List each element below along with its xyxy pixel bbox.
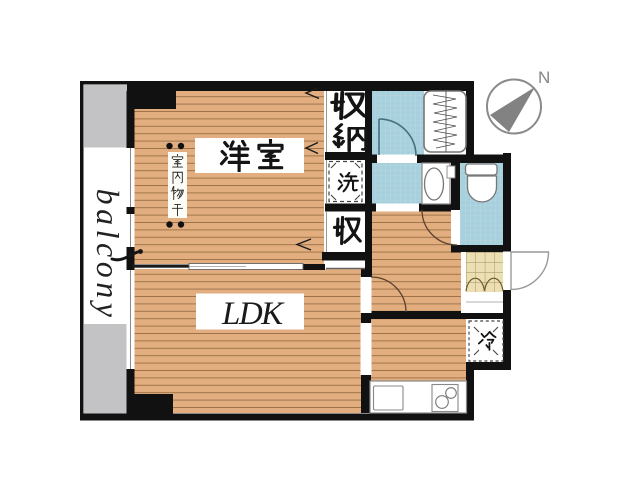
svg-text:LDK: LDK (221, 296, 285, 332)
svg-text:N: N (538, 68, 550, 87)
svg-text:balcony: balcony (90, 189, 126, 322)
